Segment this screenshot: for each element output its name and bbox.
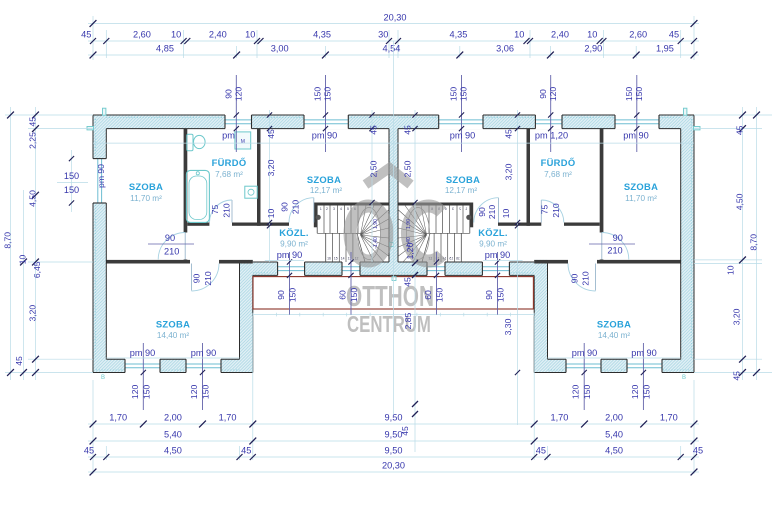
svg-text:1,20: 1,20: [405, 242, 415, 259]
svg-text:60: 60: [423, 290, 433, 300]
svg-text:2: 2: [326, 207, 328, 211]
svg-text:SZOBA: SZOBA: [307, 174, 341, 185]
svg-text:1,70: 1,70: [550, 413, 568, 423]
svg-text:150: 150: [449, 87, 459, 102]
svg-text:12,17 m²: 12,17 m²: [310, 186, 343, 195]
svg-text:10: 10: [501, 209, 511, 219]
svg-text:210: 210: [487, 205, 497, 220]
svg-text:14: 14: [341, 257, 345, 261]
svg-text:4,35: 4,35: [313, 30, 331, 40]
svg-text:45: 45: [403, 277, 413, 287]
svg-text:150: 150: [323, 87, 333, 102]
svg-text:90: 90: [570, 274, 580, 284]
svg-text:210: 210: [222, 203, 232, 218]
svg-text:4,50: 4,50: [735, 193, 745, 210]
svg-text:45: 45: [504, 129, 514, 139]
svg-text:pm 90: pm 90: [485, 250, 511, 260]
svg-text:2,00: 2,00: [605, 413, 623, 423]
svg-text:45: 45: [402, 125, 412, 135]
svg-text:90: 90: [165, 233, 175, 243]
svg-text:60: 60: [338, 290, 348, 300]
svg-text:90: 90: [192, 274, 202, 284]
svg-text:150: 150: [141, 385, 151, 400]
svg-text:2,25: 2,25: [28, 132, 38, 149]
svg-text:8,70: 8,70: [3, 232, 13, 249]
svg-text:10: 10: [18, 255, 28, 265]
svg-text:4,50: 4,50: [28, 190, 38, 207]
svg-text:210: 210: [581, 271, 591, 286]
svg-text:pm 90: pm 90: [191, 348, 217, 358]
svg-text:45: 45: [266, 129, 276, 139]
svg-text:1: 1: [465, 207, 467, 211]
svg-text:OTTHON: OTTHON: [346, 281, 434, 313]
svg-text:-1,40: -1,40: [373, 237, 379, 249]
svg-text:14,40 m²: 14,40 m²: [157, 331, 190, 340]
svg-text:FÜRDŐ: FÜRDŐ: [541, 157, 576, 168]
svg-text:pm 90: pm 90: [572, 348, 598, 358]
svg-text:150: 150: [582, 385, 592, 400]
svg-text:3,20: 3,20: [28, 305, 38, 322]
svg-text:7,68 m²: 7,68 m²: [544, 170, 572, 179]
svg-text:SZOBA: SZOBA: [597, 319, 631, 330]
svg-text:2,50: 2,50: [369, 160, 379, 177]
svg-text:16: 16: [327, 257, 331, 261]
svg-text:45: 45: [369, 125, 379, 135]
svg-text:90: 90: [280, 202, 290, 212]
svg-text:150: 150: [641, 385, 651, 400]
svg-text:CENTRUM: CENTRUM: [347, 312, 431, 337]
svg-text:4,50: 4,50: [605, 446, 623, 456]
svg-text:pm 1,20: pm 1,20: [535, 131, 568, 141]
svg-text:2,60: 2,60: [133, 30, 151, 40]
svg-text:90: 90: [224, 89, 234, 99]
svg-text:B: B: [682, 375, 686, 381]
svg-text:4,35: 4,35: [449, 30, 467, 40]
svg-text:15: 15: [449, 257, 453, 261]
svg-text:45: 45: [81, 30, 91, 40]
svg-text:2: 2: [459, 207, 461, 211]
svg-text:5: 5: [347, 207, 349, 211]
svg-text:20,30: 20,30: [384, 13, 407, 23]
svg-text:pm: pm: [222, 131, 235, 141]
svg-text:KÖZL.: KÖZL.: [279, 227, 309, 238]
svg-text:pm 90: pm 90: [96, 164, 106, 188]
svg-text:45: 45: [735, 125, 745, 135]
svg-text:150: 150: [634, 87, 644, 102]
svg-text:210: 210: [607, 246, 622, 256]
svg-text:150: 150: [201, 385, 211, 400]
svg-text:2,85: 2,85: [403, 312, 413, 329]
svg-text:KÖZL.: KÖZL.: [478, 227, 508, 238]
svg-text:90: 90: [538, 89, 548, 99]
svg-text:75: 75: [540, 205, 550, 215]
svg-text:pm 90: pm 90: [277, 250, 303, 260]
svg-text:2,00: 2,00: [164, 413, 182, 423]
svg-text:150: 150: [349, 288, 359, 303]
svg-text:4,85: 4,85: [156, 44, 174, 54]
svg-text:210: 210: [551, 203, 561, 218]
svg-text:2,40: 2,40: [209, 30, 227, 40]
svg-text:pm 90: pm 90: [130, 348, 156, 358]
svg-text:45: 45: [669, 30, 679, 40]
svg-text:3: 3: [333, 207, 335, 211]
svg-text:1,90: 1,90: [373, 219, 379, 229]
svg-text:12,17 m²: 12,17 m²: [445, 186, 478, 195]
svg-text:SZOBA: SZOBA: [156, 319, 190, 330]
svg-text:pm 90: pm 90: [631, 348, 657, 358]
svg-text:120: 120: [234, 87, 244, 102]
svg-text:90: 90: [477, 207, 487, 217]
svg-text:FÜRDŐ: FÜRDŐ: [212, 157, 247, 168]
svg-text:45: 45: [400, 426, 410, 436]
svg-text:11,70 m²: 11,70 m²: [130, 194, 162, 203]
svg-text:9,90 m²: 9,90 m²: [280, 240, 308, 249]
svg-text:3,06: 3,06: [496, 44, 514, 54]
svg-text:150: 150: [624, 87, 634, 102]
svg-text:120: 120: [130, 385, 140, 400]
svg-text:75: 75: [210, 205, 220, 215]
svg-text:120: 120: [571, 385, 581, 400]
svg-text:pm 90: pm 90: [312, 131, 338, 141]
svg-text:3,20: 3,20: [266, 159, 276, 176]
svg-text:210: 210: [291, 200, 301, 215]
svg-text:3,30: 3,30: [503, 318, 513, 335]
svg-text:90: 90: [276, 290, 286, 300]
svg-text:1,95: 1,95: [656, 44, 674, 54]
svg-text:1,90: 1,90: [406, 219, 412, 229]
svg-text:SZOBA: SZOBA: [129, 181, 163, 192]
svg-text:10: 10: [514, 30, 524, 40]
svg-text:210: 210: [203, 271, 213, 286]
svg-text:pm 90: pm 90: [450, 131, 476, 141]
svg-text:45: 45: [693, 446, 703, 456]
svg-text:150: 150: [435, 288, 445, 303]
svg-text:150: 150: [64, 185, 79, 195]
svg-text:90: 90: [613, 233, 623, 243]
svg-text:16: 16: [456, 257, 460, 261]
svg-text:45: 45: [28, 117, 38, 127]
svg-text:SZOBA: SZOBA: [624, 181, 658, 192]
svg-text:2,50: 2,50: [402, 160, 412, 177]
svg-text:2,90: 2,90: [584, 44, 602, 54]
svg-text:45: 45: [84, 446, 94, 456]
svg-text:45: 45: [732, 371, 742, 381]
svg-text:10: 10: [266, 209, 276, 219]
svg-text:10: 10: [726, 265, 736, 275]
svg-text:7,68 m²: 7,68 m²: [215, 170, 243, 179]
svg-text:30: 30: [378, 30, 388, 40]
svg-text:3,00: 3,00: [271, 44, 289, 54]
svg-text:45: 45: [536, 446, 546, 456]
svg-text:5,40: 5,40: [605, 430, 623, 440]
svg-text:B: B: [101, 375, 105, 381]
svg-text:3,20: 3,20: [732, 308, 742, 325]
svg-text:5,40: 5,40: [164, 430, 182, 440]
svg-text:1: 1: [320, 207, 322, 211]
svg-text:3,20: 3,20: [504, 163, 514, 180]
svg-text:120: 120: [189, 385, 199, 400]
svg-text:210: 210: [164, 247, 179, 257]
svg-text:20,30: 20,30: [382, 461, 405, 471]
svg-text:8,70: 8,70: [749, 234, 759, 251]
svg-text:1,70: 1,70: [219, 413, 237, 423]
svg-text:SZOBA: SZOBA: [446, 174, 480, 185]
svg-text:4,54: 4,54: [382, 44, 400, 54]
svg-text:6,45: 6,45: [32, 261, 42, 278]
svg-text:150: 150: [64, 171, 79, 181]
svg-text:9,90 m²: 9,90 m²: [479, 240, 507, 249]
svg-text:150: 150: [496, 288, 506, 303]
svg-text:10: 10: [245, 30, 255, 40]
svg-text:120: 120: [630, 385, 640, 400]
svg-text:M: M: [241, 139, 245, 145]
svg-text:10: 10: [587, 30, 597, 40]
svg-text:150: 150: [459, 87, 469, 102]
svg-text:2,60: 2,60: [629, 30, 647, 40]
svg-text:11,70 m²: 11,70 m²: [625, 194, 657, 203]
svg-text:14,40 m²: 14,40 m²: [598, 331, 631, 340]
svg-text:15: 15: [334, 257, 338, 261]
svg-text:1,70: 1,70: [660, 413, 678, 423]
svg-text:45: 45: [14, 356, 24, 366]
svg-text:10: 10: [171, 30, 181, 40]
svg-text:4: 4: [340, 207, 342, 211]
svg-text:45: 45: [241, 446, 251, 456]
svg-text:4,50: 4,50: [164, 446, 182, 456]
svg-text:120: 120: [548, 87, 558, 102]
svg-text:2,40: 2,40: [551, 30, 569, 40]
svg-text:pm 90: pm 90: [623, 131, 649, 141]
svg-text:1,70: 1,70: [109, 413, 127, 423]
svg-text:90: 90: [484, 290, 494, 300]
svg-text:3: 3: [452, 207, 454, 211]
svg-text:150: 150: [313, 87, 323, 102]
svg-text:9,50: 9,50: [385, 446, 403, 456]
svg-text:150: 150: [288, 288, 298, 303]
